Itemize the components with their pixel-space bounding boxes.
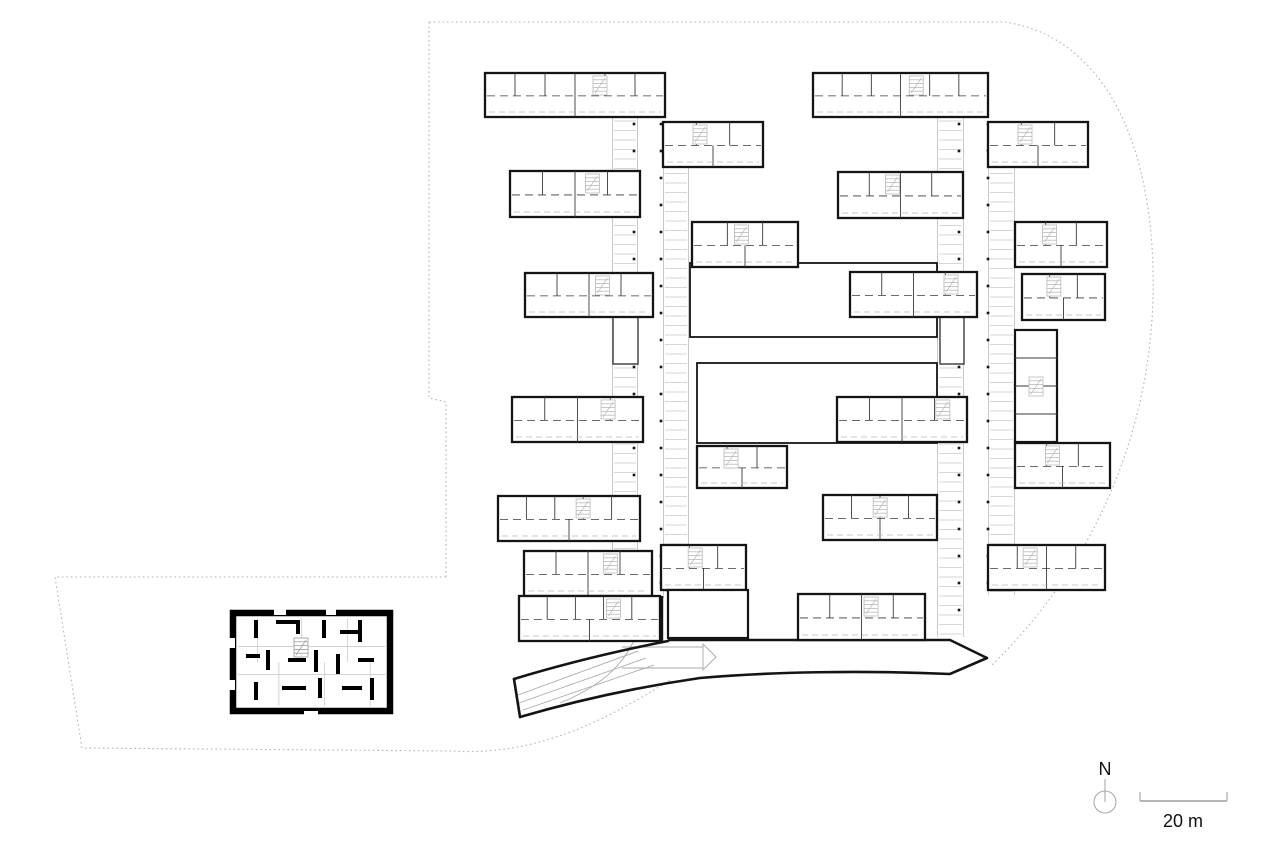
scale-label: 20 m [1163, 811, 1203, 831]
north-arrow: N [1094, 759, 1116, 813]
annex-building [228, 608, 390, 718]
north-label: N [1099, 759, 1112, 779]
floor-plan-page: N 20 m [0, 0, 1280, 853]
scale-bar: 20 m [1140, 792, 1227, 831]
site-plan-drawing: N 20 m [0, 0, 1280, 853]
connector-corridors [613, 317, 964, 364]
